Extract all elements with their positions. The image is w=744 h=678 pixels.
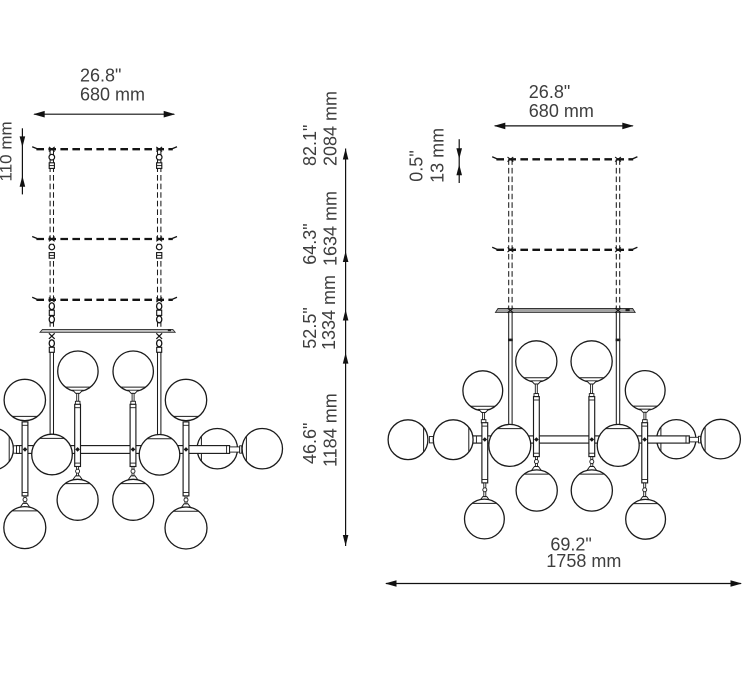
svg-text:110 mm: 110 mm: [0, 121, 16, 181]
svg-text:1334 mm: 1334 mm: [319, 275, 339, 350]
svg-text:82.1": 82.1": [300, 125, 320, 166]
svg-text:2084 mm: 2084 mm: [320, 91, 340, 166]
svg-text:1184 mm: 1184 mm: [320, 393, 340, 467]
svg-text:26.8": 26.8": [529, 82, 570, 102]
svg-text:13 mm: 13 mm: [427, 128, 447, 183]
svg-text:1634 mm: 1634 mm: [320, 191, 340, 266]
svg-text:64.3": 64.3": [300, 223, 320, 264]
svg-text:46.6": 46.6": [300, 423, 320, 464]
svg-text:680 mm: 680 mm: [80, 85, 145, 105]
svg-text:0.5": 0.5": [407, 150, 427, 181]
svg-text:1758 mm: 1758 mm: [546, 551, 621, 571]
svg-text:26.8": 26.8": [80, 66, 121, 86]
svg-text:680 mm: 680 mm: [529, 101, 594, 121]
svg-text:52.5": 52.5": [300, 307, 320, 348]
